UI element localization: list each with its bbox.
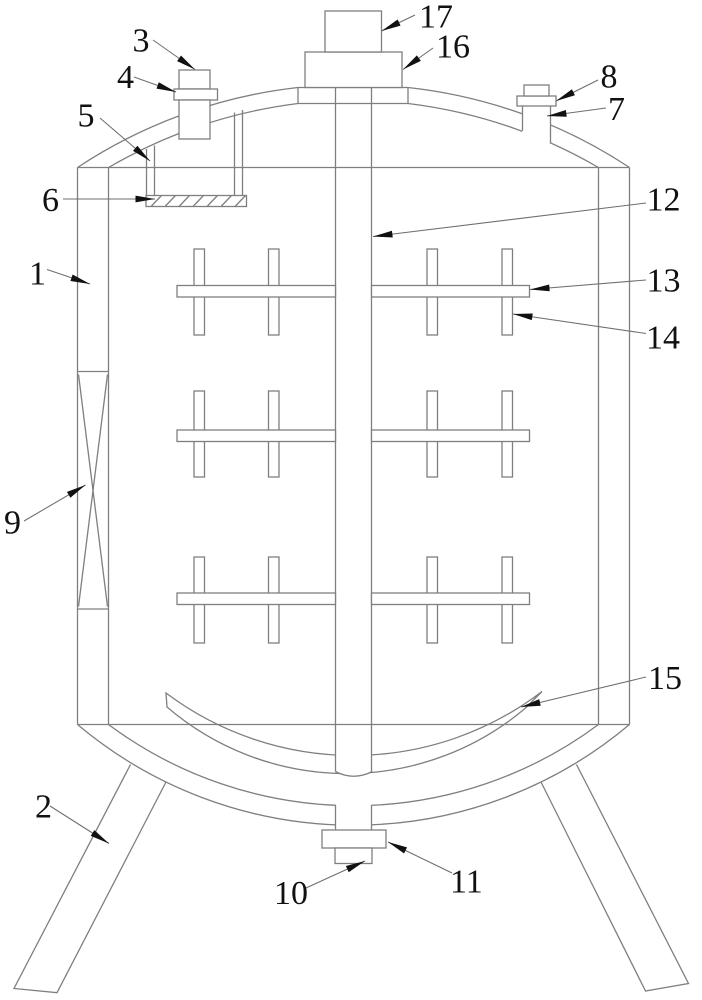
svg-text:1: 1 [29,256,46,293]
svg-text:3: 3 [133,23,150,60]
svg-text:16: 16 [436,29,470,66]
svg-text:11: 11 [450,864,483,901]
svg-text:7: 7 [608,91,625,128]
svg-text:9: 9 [4,505,21,542]
svg-text:5: 5 [78,98,95,135]
svg-text:13: 13 [647,263,681,300]
svg-text:12: 12 [647,182,681,219]
svg-text:14: 14 [646,320,680,357]
svg-text:15: 15 [648,660,682,697]
svg-text:8: 8 [601,59,618,96]
svg-text:10: 10 [274,875,308,912]
svg-text:6: 6 [42,182,59,219]
svg-text:4: 4 [117,59,134,96]
svg-text:2: 2 [35,789,52,826]
